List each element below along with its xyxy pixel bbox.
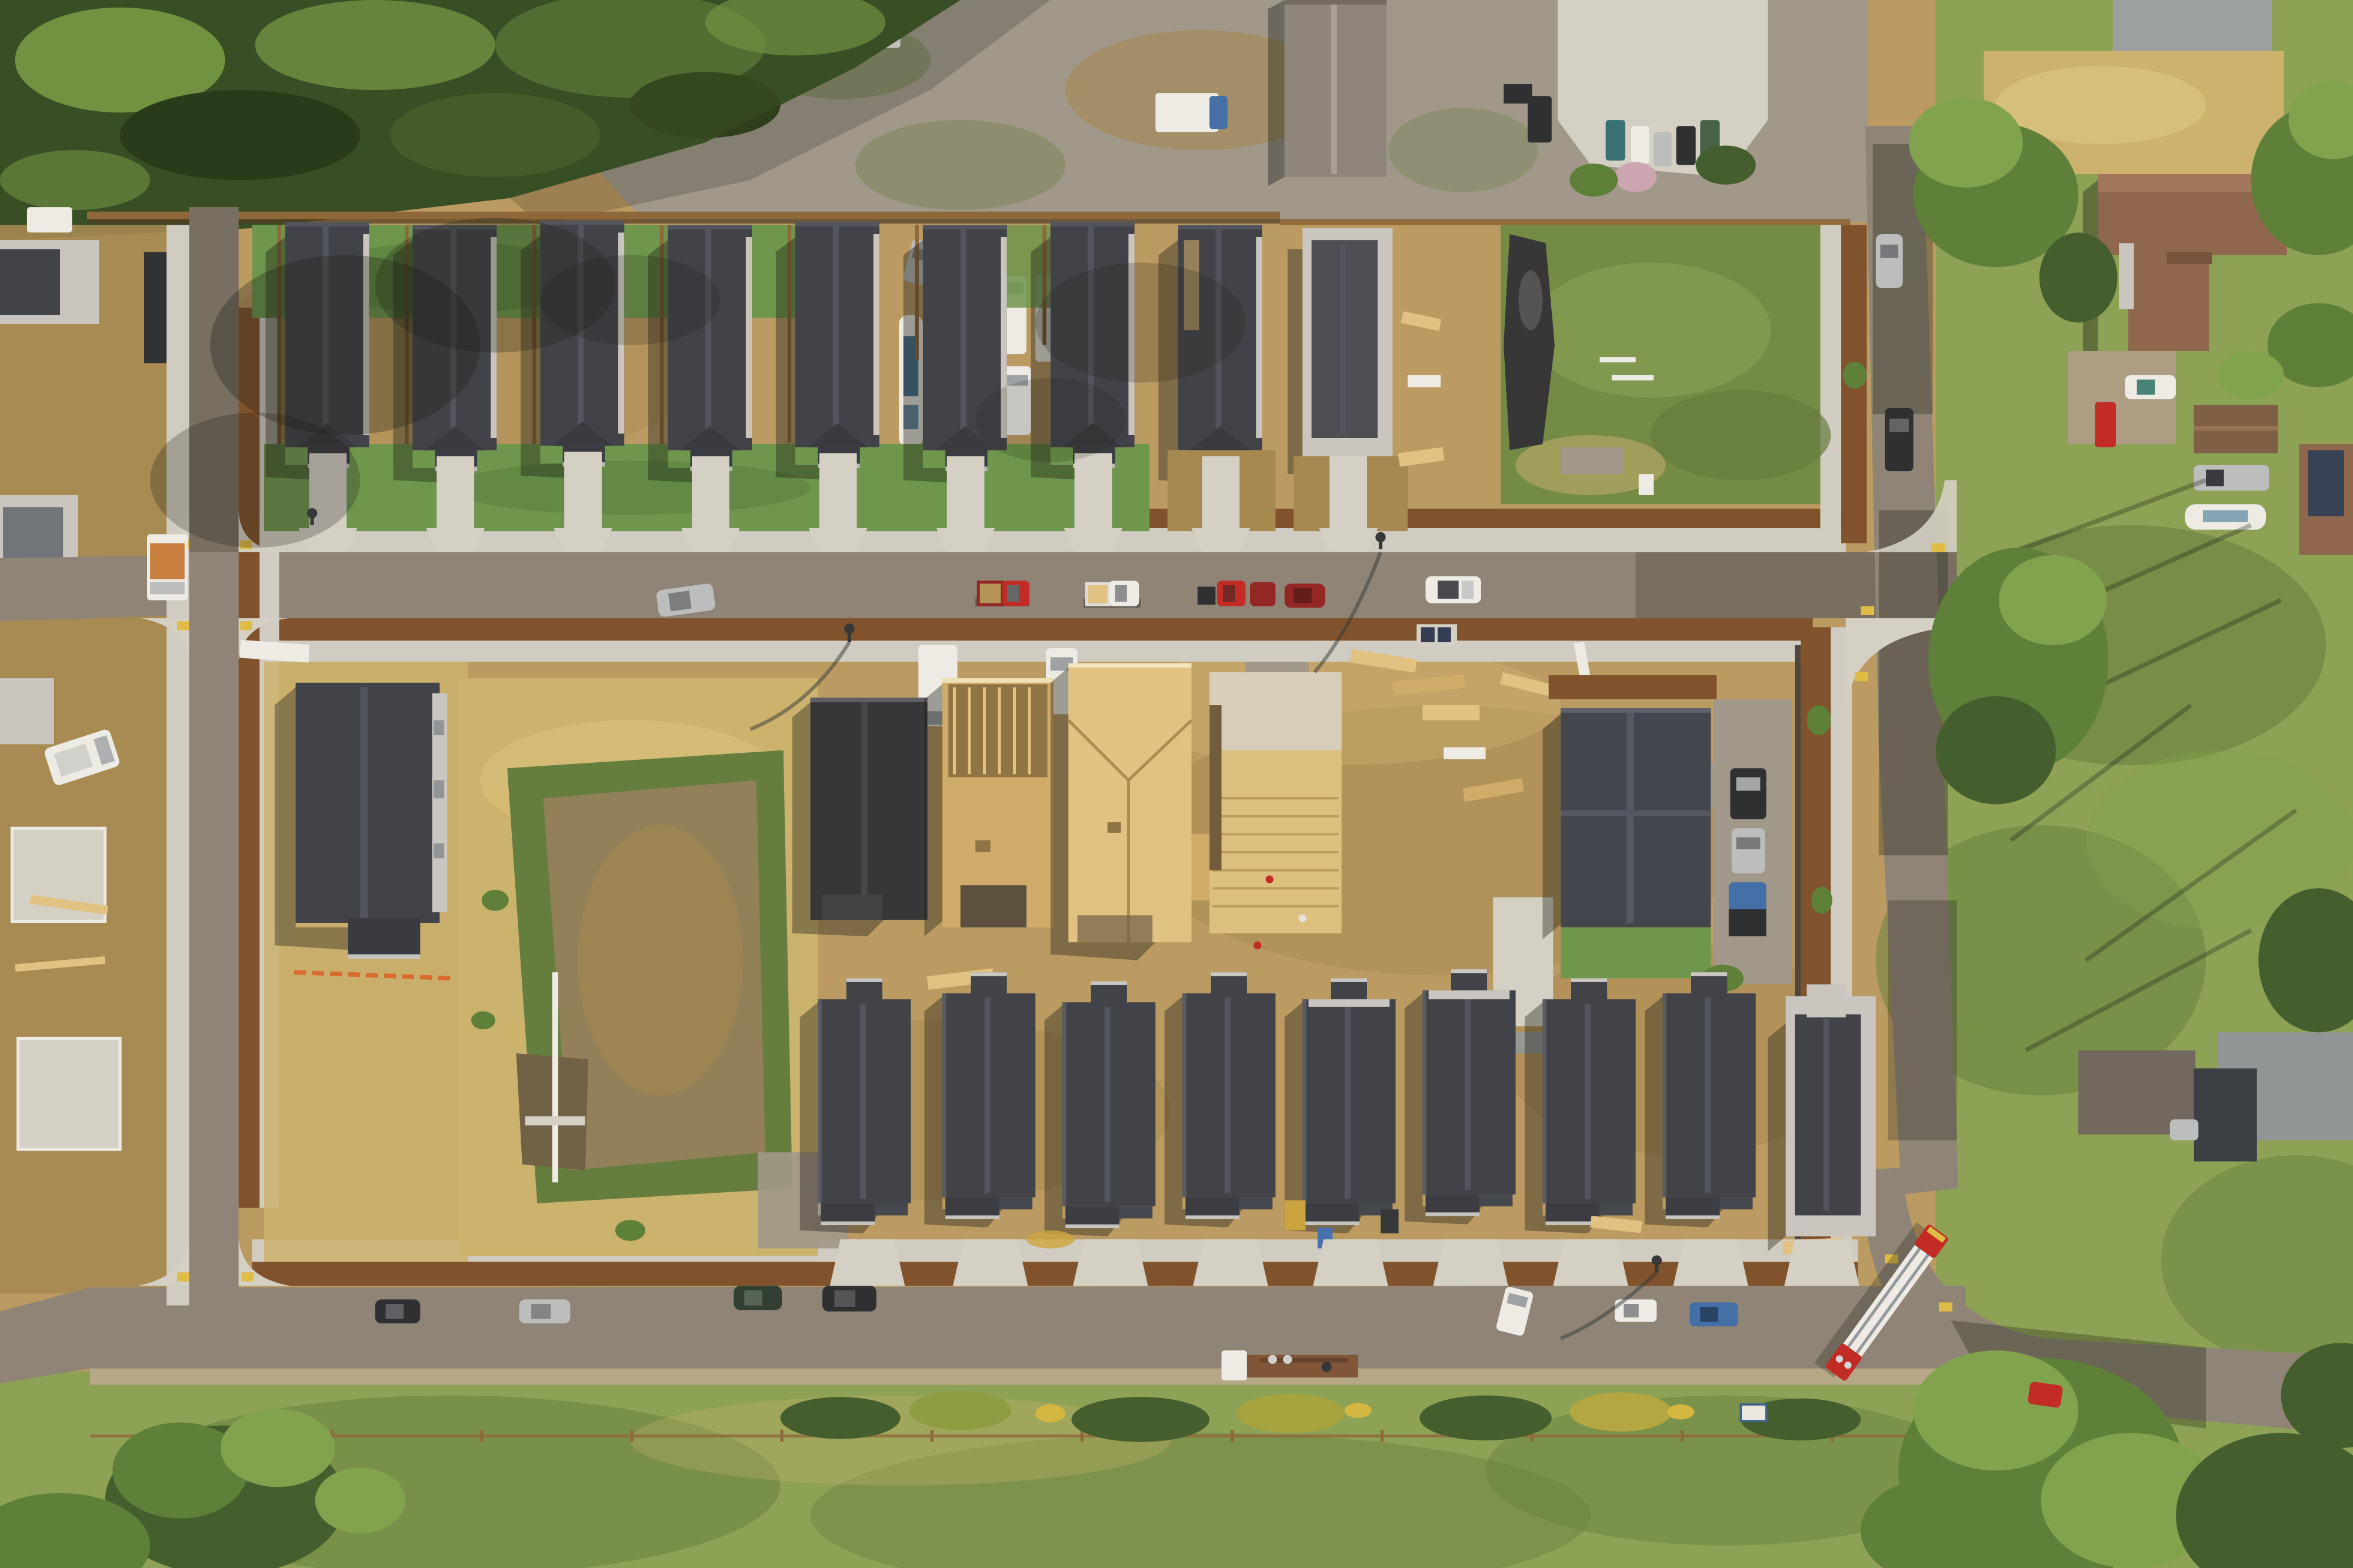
sunlight-tint	[0, 0, 2353, 1568]
aerial-photo-stage	[0, 0, 2353, 1568]
aerial-photo	[0, 0, 2353, 1568]
